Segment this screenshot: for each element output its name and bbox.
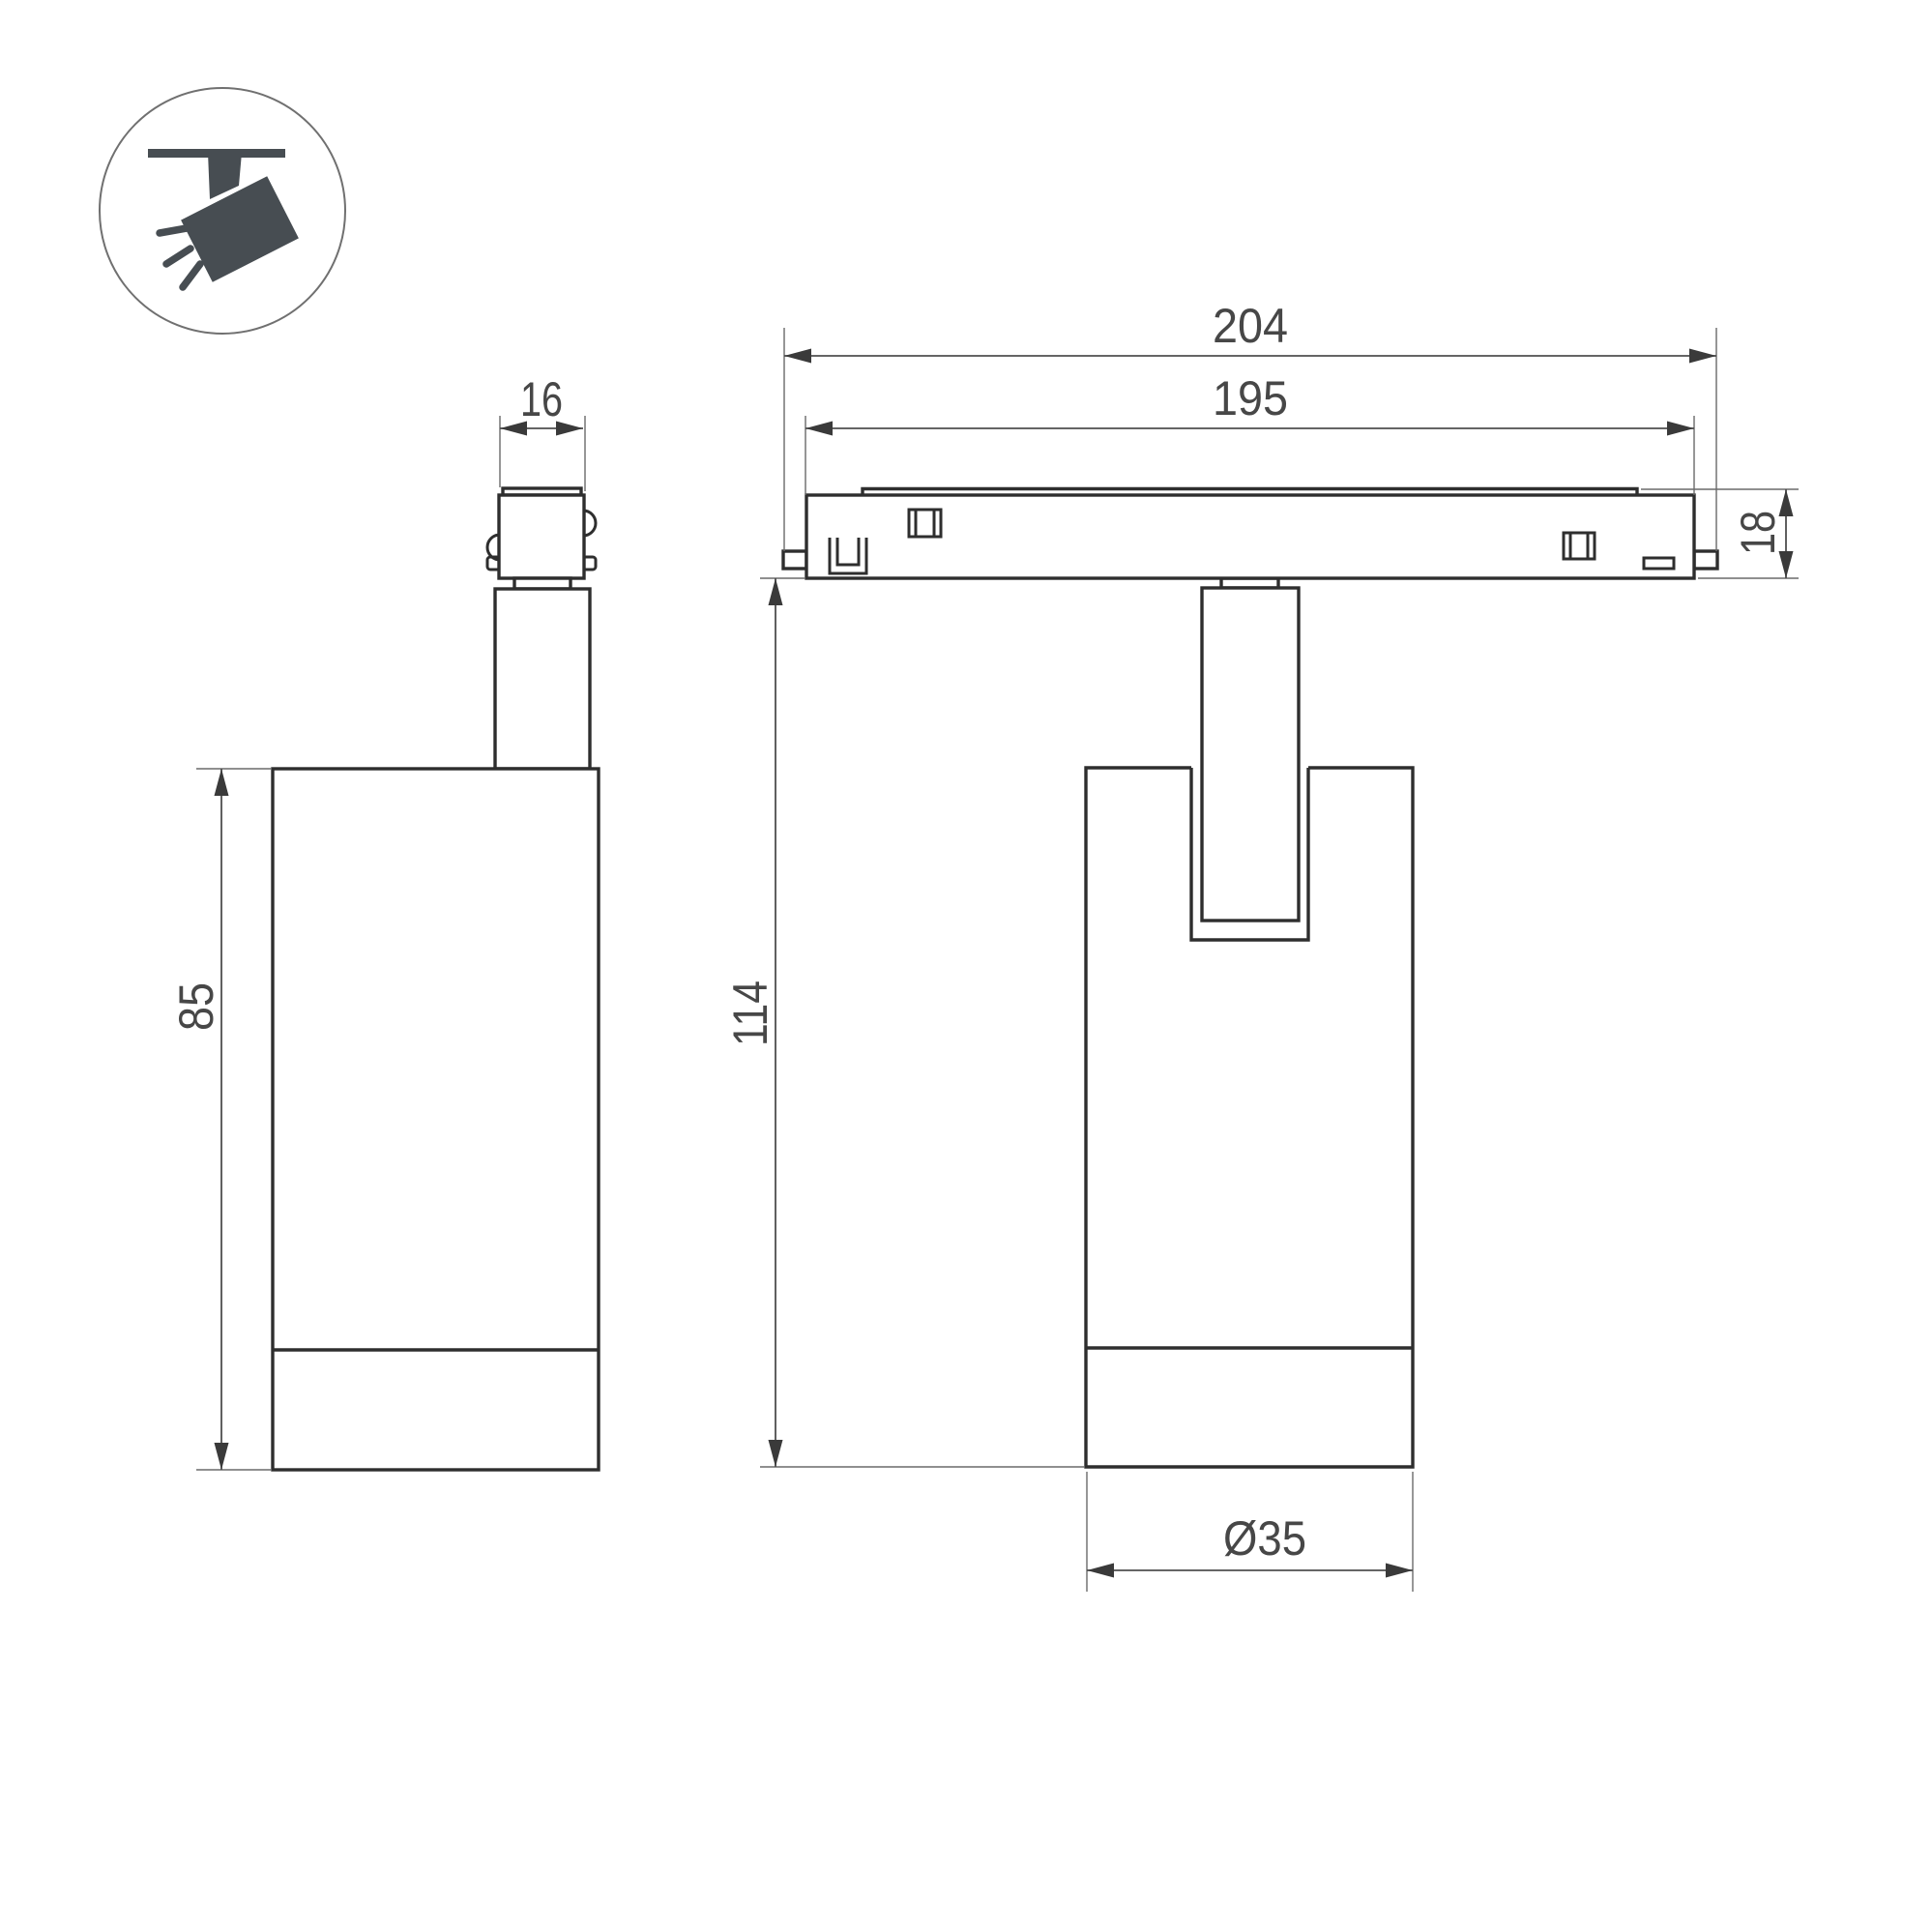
dim-label-body-height: 85 bbox=[169, 982, 223, 1031]
track-adapter bbox=[499, 495, 584, 578]
dim-label-rail-length: 195 bbox=[1213, 371, 1288, 425]
pivot-arm bbox=[1202, 588, 1299, 921]
pivot-arm bbox=[495, 589, 590, 769]
drawing-canvas: 204 195 16 18 bbox=[0, 0, 1932, 1932]
dim-label-overall-length: 204 bbox=[1213, 299, 1288, 353]
icon-light-ray bbox=[160, 228, 187, 233]
side-view bbox=[273, 488, 599, 1470]
dim-label-track-height: 18 bbox=[1731, 511, 1785, 555]
dim-body-height: 85 bbox=[169, 769, 271, 1470]
lamp-body bbox=[273, 769, 599, 1470]
dimension-drawing: 204 195 16 18 bbox=[0, 0, 1932, 1932]
dim-rail-length: 195 bbox=[805, 371, 1694, 495]
dim-label-adapter-width: 16 bbox=[520, 372, 563, 426]
front-view bbox=[783, 489, 1717, 1468]
track-end-tab-right bbox=[1694, 551, 1717, 569]
dim-label-overall-height: 114 bbox=[723, 981, 777, 1046]
track-end-tab-left bbox=[783, 551, 806, 569]
dim-adapter-width: 16 bbox=[500, 372, 585, 491]
dim-body-diameter: Ø35 bbox=[1087, 1472, 1413, 1592]
dim-overall-height: 114 bbox=[723, 578, 1085, 1467]
corner-icon bbox=[100, 88, 345, 334]
dim-label-body-diameter: Ø35 bbox=[1223, 1511, 1306, 1566]
